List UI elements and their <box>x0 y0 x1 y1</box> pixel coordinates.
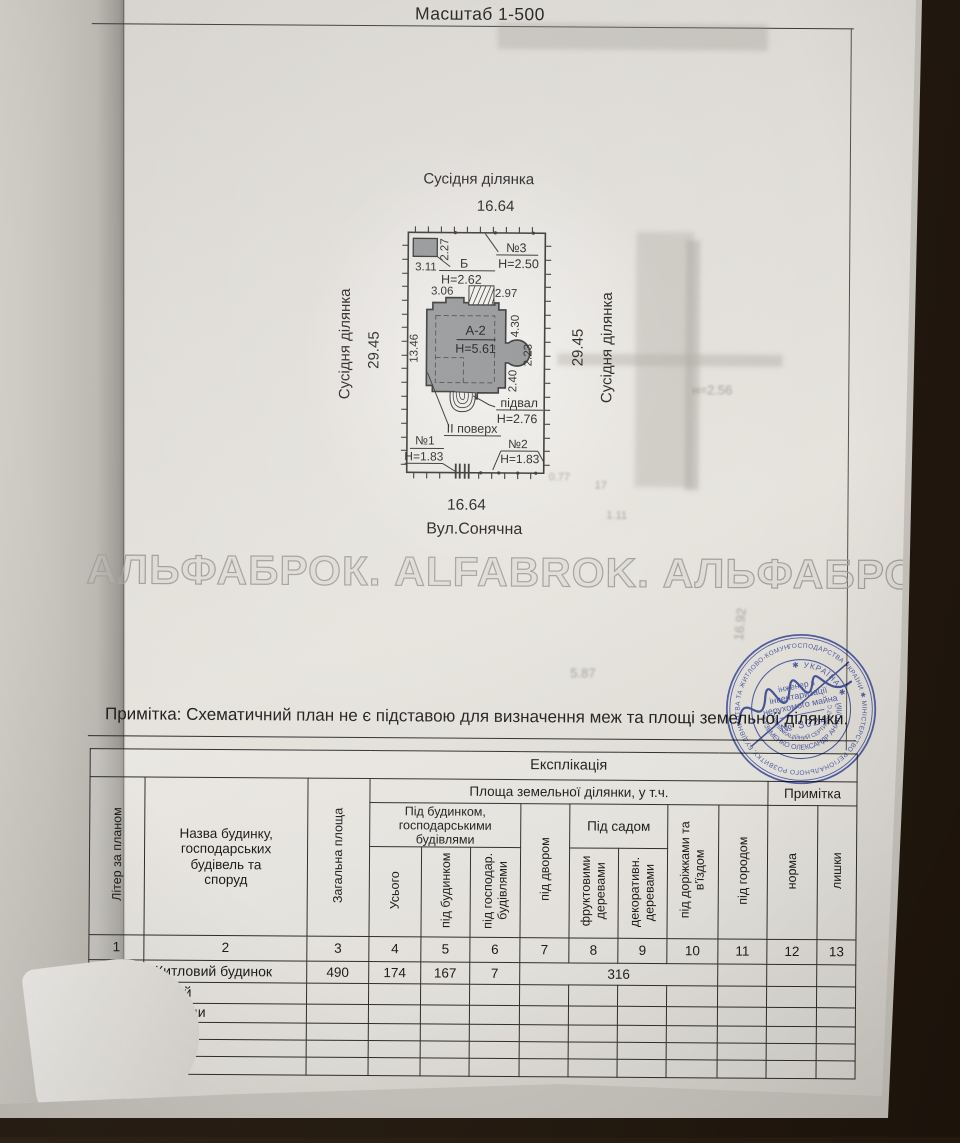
neighbor-right-label: Сусідня ділянка <box>598 292 616 404</box>
bleedthrough-band <box>685 240 701 490</box>
col-header-under-house: під будинком <box>421 847 471 937</box>
right-length-dim: 29.45 <box>569 329 586 367</box>
boundary-point <box>497 471 500 474</box>
col-header-vegetable: під городом <box>718 805 768 939</box>
basement-leader <box>473 396 495 407</box>
dim-right-bay: 2.23 <box>522 344 534 366</box>
group-header-garden: Під садом <box>570 804 668 849</box>
basement-label: підвал <box>500 396 538 410</box>
street-label: Вул.Сонячна <box>426 520 522 538</box>
col-header-total-area: Загальна площа <box>307 778 370 936</box>
col-header-norm: норма <box>767 805 818 939</box>
structure1-label: №1 <box>415 433 435 447</box>
row-house: 167 <box>421 962 470 984</box>
structure1-slant <box>443 464 456 472</box>
building-litera: А-2 <box>466 323 486 338</box>
building-height: Н=5.61 <box>455 342 496 356</box>
left-length-dim: 29.45 <box>365 331 382 369</box>
top-width-dim: 16.64 <box>477 198 515 215</box>
shed-b-footprint <box>413 238 437 256</box>
shed-b-dim-d: 2.27 <box>439 238 451 260</box>
col-header-name: Назва будинку, господарських будівель та… <box>144 777 308 936</box>
boundary-point <box>534 472 537 475</box>
dim-right-lower: 2.40 <box>507 370 519 392</box>
dim-right-upper: 4.30 <box>510 315 522 337</box>
col-header-fruit-trees: фруктовими деревами <box>569 848 619 938</box>
bleedthrough-text: н=2.56 <box>692 382 732 397</box>
structure3-leader <box>485 234 498 252</box>
col-header-surplus: лишки <box>817 806 857 940</box>
row-merged-value: 316 <box>520 963 718 986</box>
neighbor-left-label: Сусідня ділянка <box>336 288 354 400</box>
dim-left-side: 13.46 <box>408 334 420 363</box>
shed-b-dim-w: 3.11 <box>415 261 437 273</box>
document-paper: Масштаб 1-500 н=2.56 16.92 5.87 0.77 17 … <box>0 0 960 1137</box>
structure1-height: Н=1.83 <box>404 449 443 463</box>
structure2-label: №2 <box>508 437 528 451</box>
boundary-point <box>516 471 519 474</box>
col-header-paths: під доріжками та в'їздом <box>667 805 719 939</box>
row-household: 7 <box>470 962 520 984</box>
photo-background: Масштаб 1-500 н=2.56 16.92 5.87 0.77 17 … <box>0 0 960 1137</box>
structure3-height: Н=2.50 <box>498 257 539 271</box>
structure3-label: №3 <box>506 241 527 255</box>
boundary-point <box>454 231 457 234</box>
row-total: 490 <box>307 961 369 983</box>
gate-symbol <box>456 464 469 479</box>
group-header-under-building: Під будинком, господарськими будівлями <box>370 803 521 848</box>
row-usogo: 174 <box>369 962 421 984</box>
col-header-yard: під двором <box>520 804 570 938</box>
neighbor-top-label: Сусідня ділянка <box>423 170 535 188</box>
col-header-under-household: під господар. будівлями <box>470 847 521 937</box>
bleedthrough-text: 5.87 <box>570 665 595 680</box>
second-floor-label: ІІ поверх <box>447 422 498 436</box>
dim-top-right: 2.97 <box>495 288 517 300</box>
col-header-usogo: Усього <box>369 847 422 937</box>
watermark: АЛЬФАБРОК. ALFABROK. АЛЬФАБРОК <box>86 546 879 599</box>
dim-top-left: 3.06 <box>431 285 453 297</box>
boundary-point <box>532 232 535 235</box>
col-header-decor-trees: декоративн. деревами <box>618 848 668 938</box>
basement-height: Н=2.76 <box>497 412 538 426</box>
structure2-height: Н=1.83 <box>500 452 539 466</box>
round-stamp: ГОСПОДАРСТВА УКРАЇНИ ✱ МІНІСТЕРСТВО РЕГІ… <box>706 614 895 803</box>
shed-b-litera: Б <box>460 257 468 271</box>
bottom-width-dim: 16.64 <box>447 497 486 514</box>
col-header-liter: Літер за планом <box>89 777 145 935</box>
site-plan: Сусідня ділянка 16.64 Сусідня ділянка 29… <box>326 152 649 554</box>
boundary-point <box>479 471 482 474</box>
boundary-point <box>494 231 497 234</box>
